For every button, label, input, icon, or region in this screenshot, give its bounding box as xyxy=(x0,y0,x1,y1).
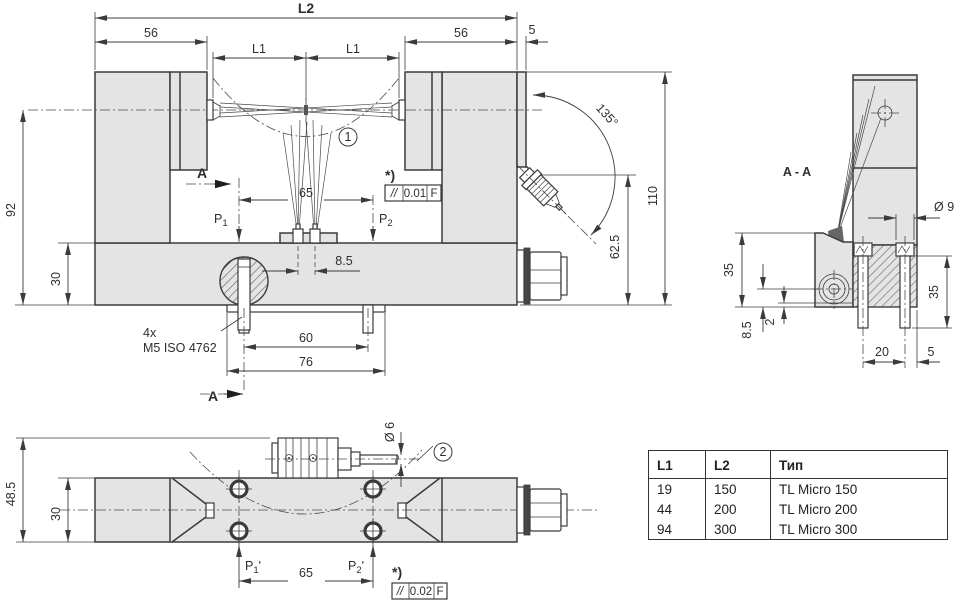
note-screw-type: M5 ISO 4762 xyxy=(143,341,217,355)
right-arm xyxy=(405,72,442,170)
side-connector xyxy=(517,248,567,304)
label-p1: P1 xyxy=(214,212,228,229)
pin-left xyxy=(296,224,300,229)
svg-text:1: 1 xyxy=(345,130,352,144)
dim-30-bottom: 30 xyxy=(49,507,63,521)
cable xyxy=(360,455,397,464)
callout-1: 1 xyxy=(339,128,357,146)
table-header-l2: L2 xyxy=(706,451,771,479)
section-title: A - A xyxy=(783,165,811,179)
beam-fan-lines xyxy=(283,120,331,230)
dim-8-5-section: 8.5 xyxy=(740,321,754,338)
front-view: L2 56 56 5 L1 L1 110 62.5 135° 92 xyxy=(4,0,672,404)
table-row: 44 200 TL Micro 200 xyxy=(649,499,948,519)
dim-l2: L2 xyxy=(298,0,315,16)
cell-l1: 44 xyxy=(649,499,706,519)
note-screw-count: 4x xyxy=(143,326,157,340)
dim-8-5: 8.5 xyxy=(335,254,352,268)
beam-crossing-marker xyxy=(304,105,308,115)
fcf-value-2: 0.02 xyxy=(410,586,432,598)
label-star: *) xyxy=(385,167,395,183)
dim-48-5: 48.5 xyxy=(4,482,18,506)
fcf-parallelism-002: // 0.02 F xyxy=(392,583,447,599)
table-row: 94 300 TL Micro 300 xyxy=(649,519,948,540)
cell-l2: 200 xyxy=(706,499,771,519)
cell-type: TL Micro 150 xyxy=(771,479,948,500)
table-header-l1: L1 xyxy=(649,451,706,479)
dim-20: 20 xyxy=(875,345,889,359)
left-column xyxy=(95,72,170,243)
cell-type: TL Micro 300 xyxy=(771,519,948,540)
right-column xyxy=(442,72,517,243)
fcf-datum: F xyxy=(430,188,437,200)
base-plate xyxy=(95,243,517,305)
label-star-bottom: *) xyxy=(392,564,402,580)
dim-62-5: 62.5 xyxy=(608,235,622,259)
dim-76: 76 xyxy=(299,355,313,369)
left-lens xyxy=(207,100,220,120)
type-table: L1 L2 Тип 19 150 TL Micro 150 44 200 TL … xyxy=(648,450,948,540)
measuring-platform xyxy=(280,233,337,243)
base-lip xyxy=(227,305,385,312)
label-p2-prime: P2' xyxy=(348,559,364,576)
cell-l1: 94 xyxy=(649,519,706,540)
fcf-value: 0.01 xyxy=(404,188,426,200)
cell-l1: 19 xyxy=(649,479,706,500)
label-p1-prime: P1' xyxy=(245,559,261,576)
right-cover-plate xyxy=(517,72,526,167)
table-row: 19 150 TL Micro 150 xyxy=(649,479,948,500)
drawing-canvas: L2 56 56 5 L1 L1 110 62.5 135° 92 xyxy=(0,0,966,608)
fcf-datum-2: F xyxy=(436,586,443,598)
svg-text:2: 2 xyxy=(440,445,447,459)
dim-110: 110 xyxy=(646,186,660,206)
table-header-type: Тип xyxy=(771,451,948,479)
swivel-connector-plan xyxy=(265,438,420,478)
svg-text:A: A xyxy=(197,165,207,181)
bottom-lens-right xyxy=(398,503,406,518)
left-arm xyxy=(170,72,207,170)
pin-right xyxy=(313,224,317,229)
bottom-lens-left xyxy=(206,503,214,518)
dim-35-left: 35 xyxy=(722,263,736,277)
cell-l2: 300 xyxy=(706,519,771,540)
clamp-right xyxy=(310,229,320,243)
dim-dia6: Ø 6 xyxy=(383,422,397,442)
dim-dia9: Ø 9 xyxy=(934,200,954,214)
dim-65: 65 xyxy=(299,186,313,200)
dim-56-right: 56 xyxy=(454,26,468,40)
dim-30: 30 xyxy=(49,272,63,286)
label-p2: P2 xyxy=(379,212,393,229)
clamp-left xyxy=(293,229,303,243)
dim-35-right: 35 xyxy=(927,285,941,299)
bottom-view: Ø 6 2 48.5 30 P1' P2' xyxy=(4,422,600,599)
dim-65-bottom: 65 xyxy=(299,566,313,580)
cell-type: TL Micro 200 xyxy=(771,499,948,519)
bottom-side-connector xyxy=(517,485,567,535)
cell-l2: 150 xyxy=(706,479,771,500)
dim-5: 5 xyxy=(529,23,536,37)
dim-60: 60 xyxy=(299,331,313,345)
dim-56-left: 56 xyxy=(144,26,158,40)
dim-2: 2 xyxy=(763,318,777,325)
dim-5-section: 5 xyxy=(928,345,935,359)
dim-l1-left: L1 xyxy=(252,42,266,56)
section-marker-bottom: A xyxy=(200,388,243,404)
dim-l1-right: L1 xyxy=(346,42,360,56)
svg-text:A: A xyxy=(208,388,218,404)
callout-2: 2 xyxy=(417,443,452,461)
dim-92: 92 xyxy=(4,203,18,217)
fcf-parallelism-001: // 0.01 F xyxy=(385,185,441,201)
section-view-a-a: A - A xyxy=(722,75,954,368)
